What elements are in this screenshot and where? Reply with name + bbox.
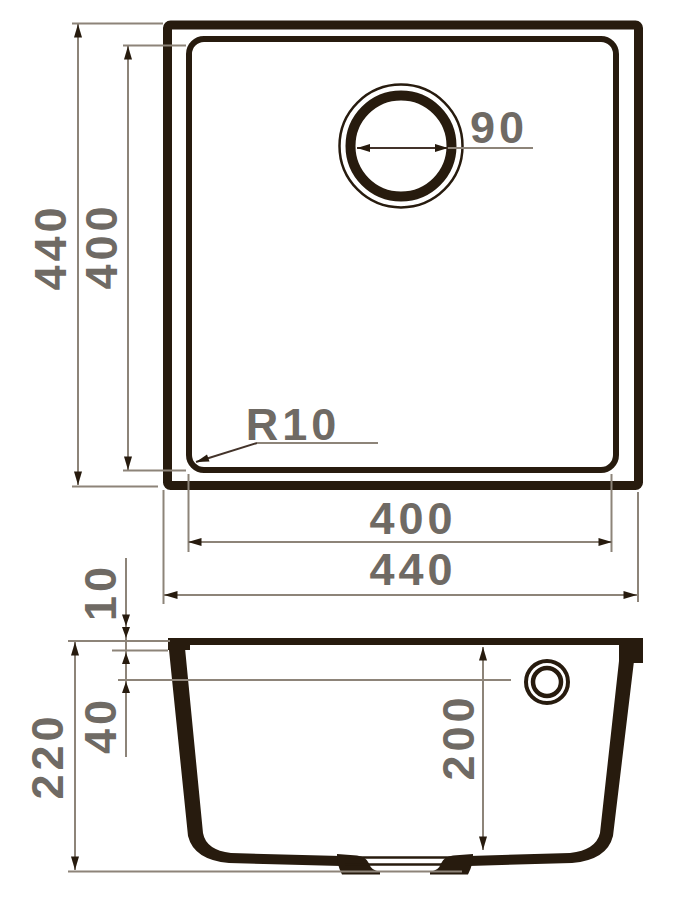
arrowhead-right [624,591,638,599]
arrowhead [196,455,210,463]
overflow-hole-inner-ring [533,668,561,696]
dim-label: R10 [246,399,341,450]
sink-right-wall [469,661,634,866]
arrowhead-up [479,647,487,661]
sink-rim-section [168,638,643,663]
arrowhead-left [164,591,178,599]
arrowhead-down [74,472,82,486]
drain-flange-circle [340,85,463,208]
dim-label: 440 [25,203,76,290]
dim-rim-and-overflow: 10 40 [75,558,131,757]
dim-label: 220 [22,712,73,799]
arrowhead-down-inner [122,627,130,638]
arrowhead-down [479,837,487,851]
arrowhead-left [188,538,202,546]
arrowhead-down [71,857,79,871]
sink-technical-drawing: 440 400 90 R10 [0,0,689,907]
dim-label: 440 [369,544,456,595]
arrowhead-right [599,538,613,546]
arrowhead-left [357,144,370,152]
arrowhead-up [74,24,82,38]
dim-label-rim: 10 [75,563,126,621]
arrowhead-right [435,144,448,152]
dim-label: 200 [433,693,484,780]
top-view: 440 400 90 R10 [25,24,639,605]
dim-bowl-depth: 200 [433,647,488,850]
dim-label: 400 [76,202,127,289]
arrowhead-up [71,642,79,656]
arrowhead-up [124,46,132,60]
dim-label-overflow: 40 [75,696,126,754]
dim-label: 90 [470,102,528,153]
arrowhead-up-outer [122,682,130,694]
arrowhead-down [124,457,132,471]
dim-label: 400 [369,493,456,544]
dim-corner-radius: R10 [196,399,378,463]
arrowhead-up-inner [122,653,130,665]
side-view: 220 10 40 200 [22,558,644,875]
dim-total-depth: 220 [22,642,80,870]
